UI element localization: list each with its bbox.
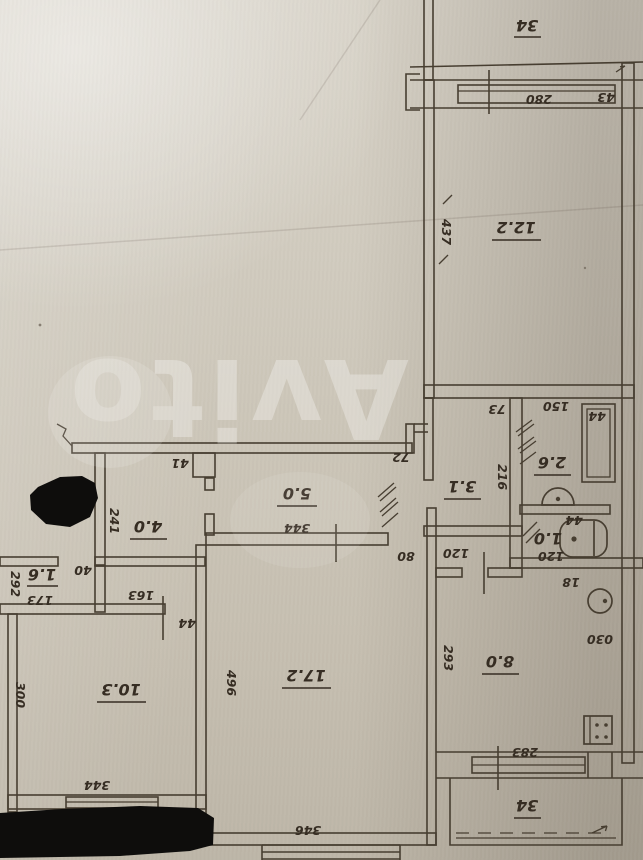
dim-344-window: 344 <box>84 778 110 793</box>
redaction-blob <box>30 476 98 527</box>
dim-241: 241 <box>107 508 122 534</box>
room-label-17-2: 17.2 <box>286 666 325 685</box>
bath-sink-icon <box>542 488 574 505</box>
dim-120-kitchen: 120 <box>443 546 469 561</box>
dim-283: 283 <box>512 745 538 760</box>
room-label-8-0: 8.0 <box>486 652 514 671</box>
dim-173: 173 <box>27 593 53 608</box>
fixtures <box>378 66 625 833</box>
room-label-10-3: 10.3 <box>101 680 140 699</box>
room-label-2-6: 2.6 <box>538 453 566 472</box>
dim-437: 437 <box>439 218 454 245</box>
room-label-1-0: 1.0 <box>534 529 562 548</box>
paper-creases <box>0 0 643 326</box>
dim-293: 293 <box>441 645 456 671</box>
room-label-balcony-top: 34 <box>516 16 538 35</box>
redactions <box>0 476 214 858</box>
dimension-arrow-ticks <box>439 66 625 833</box>
dim-40: 40 <box>74 563 93 578</box>
dim-80: 80 <box>397 549 415 564</box>
dim-496: 496 <box>224 669 239 696</box>
dim-300: 300 <box>13 682 28 708</box>
stove-icon <box>584 716 612 744</box>
dim-346: 346 <box>295 823 321 838</box>
dim-18: 18 <box>562 575 580 590</box>
dim-44-closet: 44 <box>178 616 196 631</box>
dim-216: 216 <box>495 464 510 490</box>
dim-163: 163 <box>128 588 154 603</box>
redaction-bar <box>0 806 214 858</box>
room-label-3-1: 3.1 <box>448 477 476 496</box>
floor-plan-photo: 34 12.2 2.6 3.1 1.0 5.0 4.0 1.6 10.3 17.… <box>0 0 643 860</box>
dim-120-wc: 120 <box>538 549 564 564</box>
watermark-text: Avito <box>65 334 409 462</box>
dim-030: 030 <box>587 632 613 647</box>
dim-44-wc: 44 <box>565 513 583 528</box>
dim-280: 280 <box>526 92 552 107</box>
room-label-12-2: 12.2 <box>496 218 535 237</box>
dim-44-bath: 44 <box>588 409 606 424</box>
room-label-1-6: 1.6 <box>28 565 56 584</box>
floor-plan-drawing: 34 12.2 2.6 3.1 1.0 5.0 4.0 1.6 10.3 17.… <box>0 0 643 860</box>
dim-73: 73 <box>488 402 505 417</box>
room-label-4-0: 4.0 <box>134 517 163 536</box>
dim-150: 150 <box>543 399 569 414</box>
room-label-balcony-bottom: 34 <box>516 796 538 815</box>
dim-43: 43 <box>597 90 615 105</box>
kitchen-sink-icon <box>588 589 612 613</box>
dim-292: 292 <box>8 571 23 597</box>
